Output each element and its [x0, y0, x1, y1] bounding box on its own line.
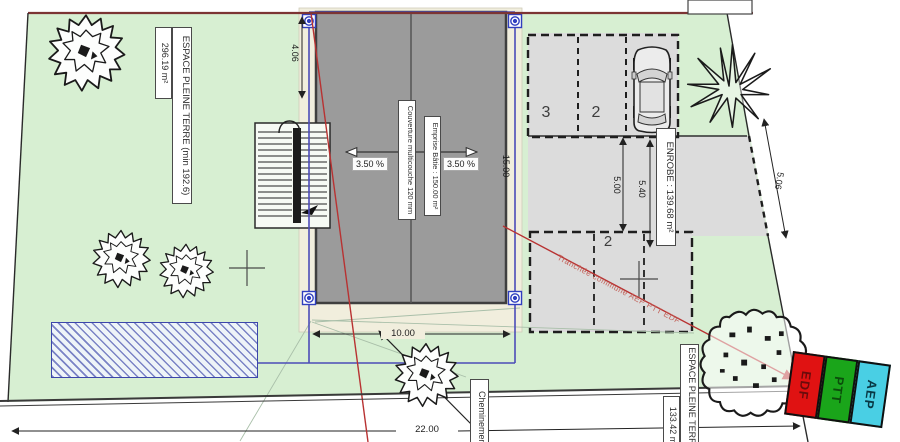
stair-icon	[255, 121, 330, 228]
espace-pleine-terre-bottom-area: 133.42 m²	[663, 396, 680, 442]
hatched-zone	[51, 322, 258, 378]
utility-label-ptt: PTT	[828, 375, 847, 404]
site-plan: ESPACE PLEINE TERRE (min 192.6) 296.19 m…	[0, 0, 900, 442]
espace-pleine-terre-top-label: ESPACE PLEINE TERRE (min 192.6)	[172, 27, 192, 204]
dim-5-00: 5.00	[612, 170, 622, 200]
utility-label-edf: EDF	[795, 370, 814, 401]
dim-10-00: 10.00	[381, 328, 425, 339]
parking-space-3: 3	[536, 104, 556, 122]
parking-space-2: 2	[586, 104, 606, 122]
neighbor-building	[688, 0, 752, 14]
slope-label-left: 3.50 %	[352, 157, 388, 171]
dim-22-00: 22.00	[398, 424, 456, 435]
espace-pleine-terre-bottom-label: ESPACE PLEINE TERRE	[680, 344, 699, 442]
dim-15-00: 15.00	[501, 147, 511, 185]
dim-5-40: 5.40	[637, 174, 647, 204]
utility-label-aep: AEP	[861, 378, 880, 410]
dim-4-06: 4.06	[290, 36, 300, 70]
car-icon	[632, 47, 672, 133]
enrobe-label: ENROBE : 139.68 m²	[656, 128, 676, 246]
terrace-space-2: 2	[598, 233, 618, 250]
cheminement-label: Cheminement	[470, 379, 489, 442]
utility-boxes: EDF PTT AEP	[784, 351, 891, 428]
slope-label-right: 3.50 %	[443, 157, 479, 171]
building-footprint-label: Emprise Bâtie : 150.00 m²	[424, 116, 441, 216]
roof-covering-label: Couverture multicouche 120 mm	[398, 100, 416, 220]
espace-pleine-terre-top-area: 296.19 m²	[155, 27, 172, 99]
